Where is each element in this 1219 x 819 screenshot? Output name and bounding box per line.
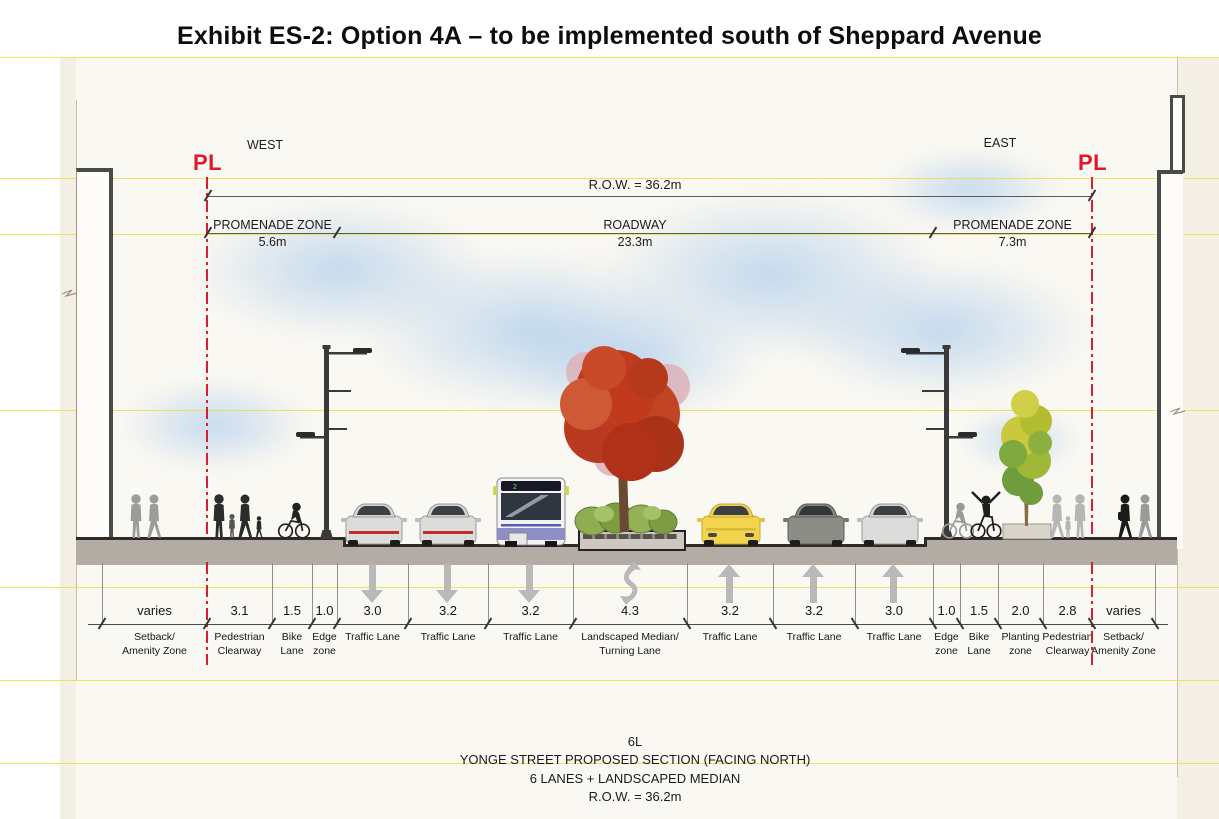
pedestrian-couple-west: [131, 494, 162, 538]
lane-label: Traffic Lane: [482, 631, 579, 645]
pedestrian-dark-east: [1118, 495, 1132, 539]
lane-width-value: 1.0: [933, 603, 960, 618]
pedestrian-family-east: [1050, 494, 1085, 538]
lane-label: Setback/ Amenity Zone: [1086, 631, 1161, 658]
lane-width-value: 3.0: [855, 603, 933, 618]
lane-width-value: 3.2: [408, 603, 488, 618]
car-silver-2: [415, 504, 481, 546]
lane-label: Traffic Lane: [402, 631, 494, 645]
property-line-east-lower: [1091, 562, 1093, 665]
bus: 2: [493, 478, 569, 547]
lane-width-value: 1.5: [272, 603, 312, 618]
svg-text:2: 2: [513, 484, 517, 491]
street-light-east: [901, 345, 977, 539]
lane-width-value: varies: [102, 603, 207, 618]
lane-label: Traffic Lane: [767, 631, 861, 645]
break-symbol-west: [62, 290, 77, 296]
lane-label: Traffic Lane: [849, 631, 939, 645]
lane-width-value: 2.0: [998, 603, 1043, 618]
pedestrian-gray-east: [1138, 495, 1152, 539]
lane-label: Landscaped Median/ Turning Lane: [567, 631, 693, 658]
property-line-west-lower: [206, 562, 208, 665]
lane-label: Traffic Lane: [681, 631, 779, 645]
caption-line-3: 6 LANES + LANDSCAPED MEDIAN: [335, 770, 935, 788]
break-symbol-east: [1170, 408, 1185, 414]
cyclist-west: [279, 503, 310, 538]
car-silver-1: [341, 504, 407, 546]
lane-width-value: 3.2: [687, 603, 773, 618]
section-caption: 6L YONGE STREET PROPOSED SECTION (FACING…: [335, 733, 935, 807]
red-maple-tree: [560, 346, 690, 532]
cyclist-east-raised-arms: [971, 492, 1001, 538]
lane-width-value: 1.5: [960, 603, 998, 618]
lane-dimension-line: [88, 624, 1168, 625]
street-cross-section-diagram: Exhibit ES-2: Option 4A – to be implemen…: [0, 0, 1219, 819]
lane-label: Setback/ Amenity Zone: [96, 631, 213, 658]
lane-width-value: 3.1: [207, 603, 272, 618]
car-yellow: [697, 504, 765, 546]
pedestrian-family-west: [214, 494, 263, 538]
lane-width-value: 3.2: [773, 603, 855, 618]
lane-width-value: 3.0: [337, 603, 408, 618]
east-tree: [999, 390, 1052, 539]
scene-art: 2: [0, 0, 1219, 819]
caption-line-4: R.O.W. = 36.2m: [335, 788, 935, 806]
lane-width-value: 1.0: [312, 603, 337, 618]
caption-line-2: YONGE STREET PROPOSED SECTION (FACING NO…: [335, 751, 935, 769]
lane-width-value: 3.2: [488, 603, 573, 618]
lane-width-value: varies: [1092, 603, 1155, 618]
lane-width-value: 2.8: [1043, 603, 1092, 618]
exhibit-title: Exhibit ES-2: Option 4A – to be implemen…: [0, 22, 1219, 51]
car-silver-3: [857, 504, 923, 546]
caption-line-1: 6L: [335, 733, 935, 751]
car-gray-dark: [783, 504, 849, 546]
lane-width-value: 4.3: [573, 603, 687, 618]
